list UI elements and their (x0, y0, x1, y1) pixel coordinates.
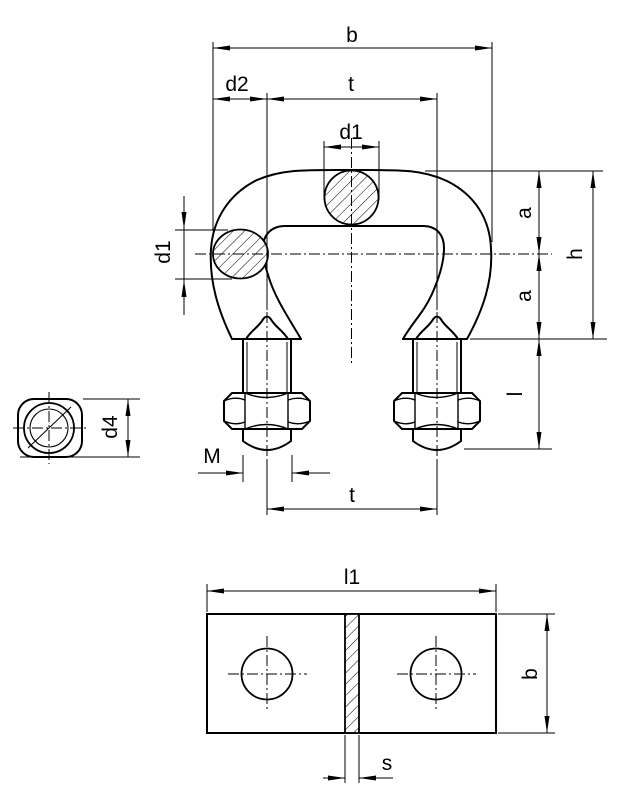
dim-label-t-bottom: t (349, 484, 355, 507)
dim-label-h: h (564, 248, 587, 260)
top-view: l1 b s (207, 566, 555, 783)
dim-label-a-upper: a (513, 207, 536, 219)
dim-label-a-lower: a (513, 290, 536, 302)
dim-label-b-top: b (346, 24, 358, 47)
rope-slot-hatched (345, 614, 359, 733)
dim-label-t-top: t (348, 73, 354, 96)
dim-label-s: s (382, 752, 393, 775)
dim-label-b-plate: b (519, 668, 542, 680)
dim-label-d1-side: d1 (152, 240, 175, 263)
dim-label-d1-top: d1 (339, 121, 362, 144)
technical-drawing-page: b d2 t d1 d1 a h a l M t d4 (0, 0, 621, 800)
dim-label-l: l (504, 392, 527, 397)
dim-label-d2: d2 (225, 73, 248, 96)
front-view: b d2 t d1 d1 a h a l M t (152, 24, 607, 515)
dim-label-thread-M: M (203, 445, 221, 468)
technical-drawing: b d2 t d1 d1 a h a l M t d4 (0, 0, 621, 800)
end-view: d4 (13, 392, 140, 464)
bow-inner-opening (263, 226, 444, 339)
dim-label-d4: d4 (99, 415, 122, 439)
dim-label-l1: l1 (344, 566, 360, 589)
